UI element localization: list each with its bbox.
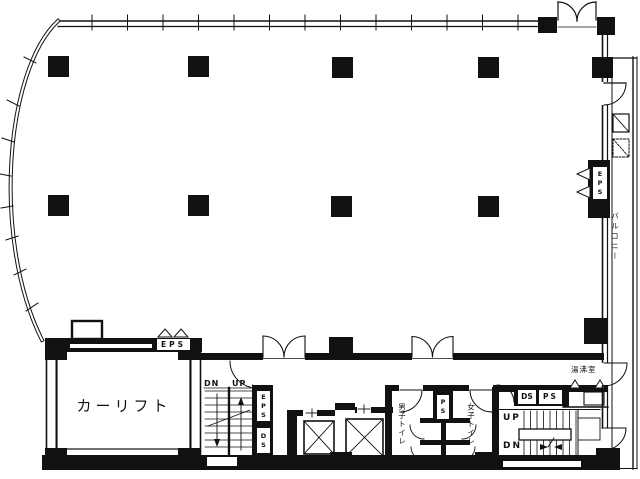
hot-water-room — [563, 380, 608, 407]
car-lift-label: カーリフト — [58, 399, 190, 414]
balcony-label: バルコニー — [611, 212, 619, 262]
eps-car-lift-shaft-label: EPS — [156, 338, 191, 351]
mens-toilet-label: 男子トイレ — [398, 403, 406, 446]
elevator-1 — [304, 421, 334, 454]
stairs-left-dn-label: DN — [204, 380, 219, 388]
womens-toilet-label: 女子トイレ — [467, 403, 475, 446]
ps-service-label: PS — [539, 390, 562, 404]
elevator-2 — [346, 419, 383, 456]
strip-door-upper — [604, 363, 627, 386]
top-double-door — [558, 2, 596, 27]
strip-door-lower — [604, 428, 626, 450]
eps-core-shaft-label: EPS — [256, 390, 271, 422]
stairs-right-dn-label: DN — [503, 442, 522, 451]
top-wall — [58, 15, 615, 35]
stairs-right-up-label: UP — [503, 414, 521, 423]
ds-core-shaft-label: DS — [256, 427, 271, 454]
core-partition-wall — [196, 336, 604, 360]
hall-double-door-right — [412, 337, 453, 359]
column-grid — [48, 56, 499, 217]
ds-service-label: DS — [518, 390, 536, 404]
ps-toilet-shaft-label: PS — [436, 394, 450, 420]
balcony-vent-2 — [613, 139, 629, 157]
floor-plan: カーリフト バルコニー EPS EPS EPS DS DN UP 男子トイレ P… — [0, 0, 640, 479]
stairs-left-up-label: UP — [232, 380, 246, 388]
balcony-strip — [608, 57, 637, 469]
balcony-vent-1 — [613, 114, 629, 132]
hall-double-door-left — [263, 336, 305, 359]
eps-right-wall-shaft-label: EPS — [592, 166, 608, 200]
hot-water-room-label: 湯沸室 — [571, 366, 597, 374]
